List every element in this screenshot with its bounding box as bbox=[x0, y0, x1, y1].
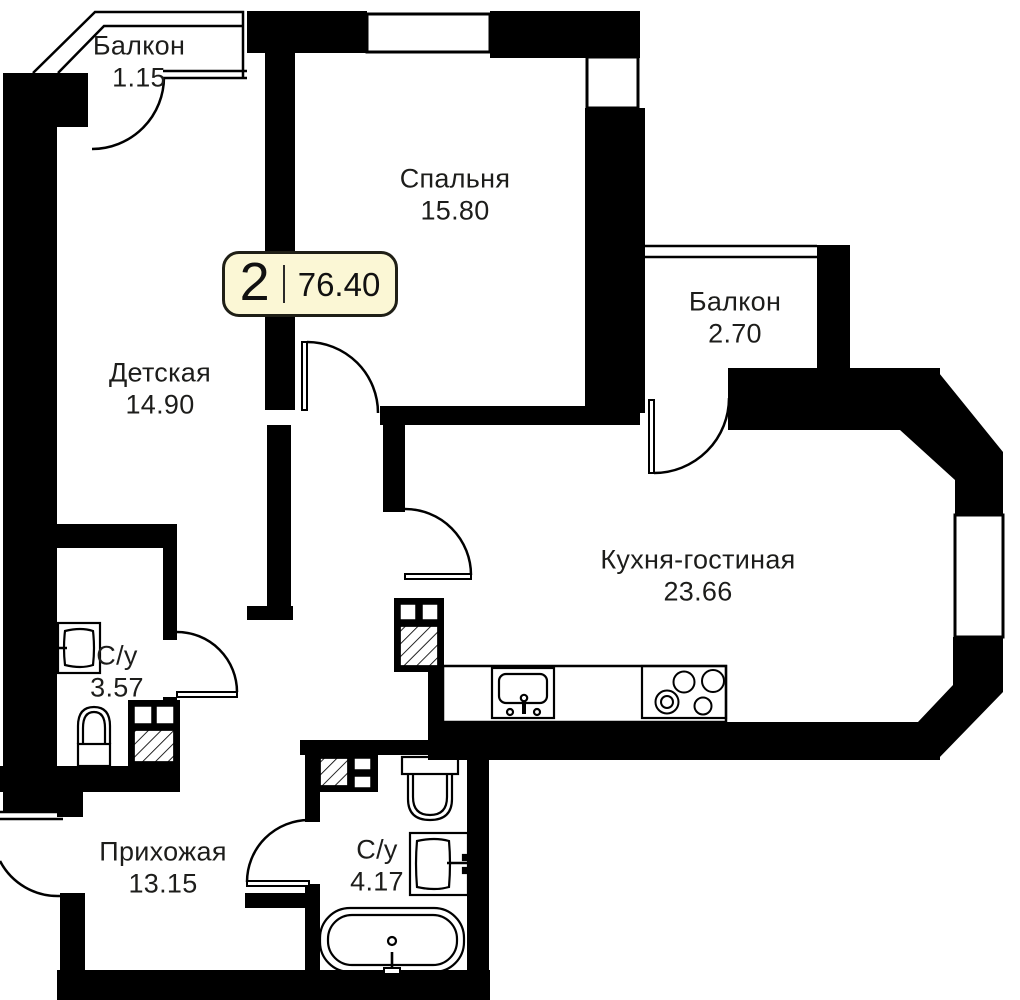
room-name: С/у bbox=[96, 641, 137, 671]
floor-plan-canvas: Балкон 1.15 Спальня 15.80 Балкон 2.70 Де… bbox=[0, 0, 1020, 1000]
apartment-number: 2 bbox=[240, 255, 270, 309]
kitchen-counter bbox=[443, 666, 726, 722]
door-leaf bbox=[177, 692, 237, 697]
sink-icon bbox=[410, 833, 470, 895]
room-label-kids-room: Детская 14.90 bbox=[109, 357, 211, 422]
room-area: 23.66 bbox=[600, 576, 795, 608]
door-swing-arc bbox=[307, 342, 378, 413]
door-swing-arc bbox=[177, 632, 237, 692]
room-name: Балкон bbox=[689, 287, 781, 317]
room-area: 13.15 bbox=[99, 868, 227, 900]
door-swing-arc bbox=[0, 861, 60, 896]
room-name: Балкон bbox=[93, 31, 185, 61]
room-label-bathroom-1: С/у 3.57 bbox=[90, 640, 144, 705]
room-name: С/у bbox=[356, 835, 397, 865]
toilet-icon bbox=[402, 757, 458, 820]
room-label-bedroom: Спальня 15.80 bbox=[400, 163, 511, 228]
room-label-balcony-2: Балкон 2.70 bbox=[689, 286, 781, 351]
room-area: 4.17 bbox=[350, 866, 404, 898]
apartment-badge: 2 76.40 bbox=[222, 251, 398, 317]
door-swing-arc bbox=[247, 820, 309, 882]
room-label-hallway: Прихожая 13.15 bbox=[99, 836, 227, 901]
room-area: 2.70 bbox=[689, 318, 781, 350]
apartment-total-area: 76.40 bbox=[298, 268, 381, 301]
window-icon bbox=[587, 57, 638, 108]
room-name: Кухня-гостиная bbox=[600, 545, 795, 575]
door-swing-arc bbox=[654, 398, 729, 473]
room-name: Прихожая bbox=[99, 837, 227, 867]
room-area: 14.90 bbox=[109, 389, 211, 421]
door-swing-arc bbox=[405, 509, 471, 575]
room-label-balcony-1: Балкон 1.15 bbox=[93, 30, 185, 95]
door-leaf bbox=[405, 574, 471, 579]
room-area: 1.15 bbox=[93, 62, 185, 94]
balcony-rail-line bbox=[640, 246, 817, 257]
entry-door-leaf bbox=[0, 812, 63, 819]
room-label-bathroom-2: С/у 4.17 bbox=[350, 834, 404, 899]
room-name: Спальня bbox=[400, 164, 511, 194]
door-leaf bbox=[649, 400, 654, 473]
bathtub-icon bbox=[320, 908, 464, 974]
door-leaf bbox=[302, 342, 307, 410]
room-area: 15.80 bbox=[400, 195, 511, 227]
window-icon bbox=[955, 515, 1003, 637]
room-area: 3.57 bbox=[90, 672, 144, 704]
room-label-kitchen-living: Кухня-гостиная 23.66 bbox=[600, 544, 795, 609]
room-name: Детская bbox=[109, 358, 211, 388]
badge-divider bbox=[283, 265, 285, 303]
window-icon bbox=[367, 14, 490, 52]
toilet-icon bbox=[78, 707, 110, 766]
door-leaf bbox=[247, 881, 309, 886]
